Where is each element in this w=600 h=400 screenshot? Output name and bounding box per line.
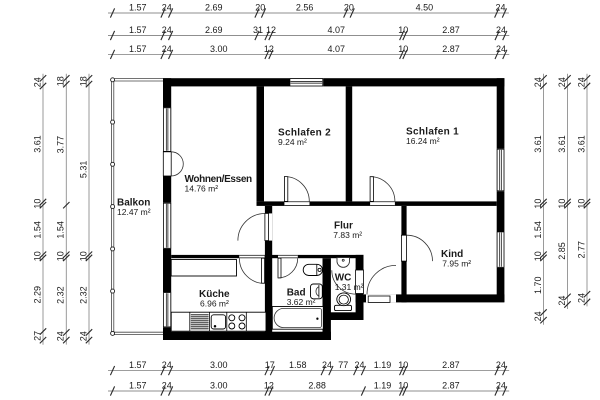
svg-text:2.69: 2.69: [205, 25, 223, 35]
svg-text:27: 27: [32, 331, 42, 341]
svg-text:10: 10: [533, 251, 543, 261]
svg-text:24: 24: [533, 77, 543, 87]
svg-text:20: 20: [255, 2, 265, 12]
svg-text:10: 10: [78, 251, 88, 261]
svg-text:24: 24: [496, 44, 506, 54]
svg-text:2.87: 2.87: [442, 44, 460, 54]
svg-text:24: 24: [162, 380, 172, 390]
svg-text:3.61: 3.61: [576, 135, 586, 153]
svg-text:2.87: 2.87: [442, 25, 460, 35]
svg-text:24: 24: [162, 360, 172, 370]
svg-text:4.07: 4.07: [328, 44, 346, 54]
svg-text:1.57: 1.57: [129, 2, 147, 12]
svg-text:2.32: 2.32: [78, 286, 88, 304]
svg-text:5.31: 5.31: [78, 161, 88, 179]
svg-text:1.31 m²: 1.31 m²: [335, 282, 364, 292]
svg-text:77: 77: [338, 360, 348, 370]
svg-text:24: 24: [56, 331, 66, 341]
svg-text:18: 18: [78, 76, 88, 86]
svg-text:10: 10: [576, 199, 586, 209]
svg-text:1.19: 1.19: [374, 360, 392, 370]
svg-text:1.70: 1.70: [533, 276, 543, 294]
svg-text:24: 24: [576, 293, 586, 303]
svg-text:2.88: 2.88: [308, 380, 326, 390]
svg-text:24: 24: [78, 331, 88, 341]
svg-text:24: 24: [322, 360, 332, 370]
svg-text:10: 10: [32, 199, 42, 209]
svg-text:10: 10: [557, 199, 567, 209]
svg-text:3.77: 3.77: [56, 136, 66, 154]
svg-text:24: 24: [557, 77, 567, 87]
svg-text:2.29: 2.29: [32, 286, 42, 304]
svg-text:1.57: 1.57: [129, 380, 147, 390]
svg-text:24: 24: [162, 44, 172, 54]
svg-text:18: 18: [56, 76, 66, 86]
svg-text:1.54: 1.54: [32, 221, 42, 239]
svg-text:1.57: 1.57: [129, 360, 147, 370]
svg-text:9.24 m²: 9.24 m²: [278, 137, 307, 147]
svg-text:2.32: 2.32: [56, 286, 66, 304]
svg-text:24: 24: [32, 77, 42, 87]
svg-text:10: 10: [398, 44, 408, 54]
svg-text:2.56: 2.56: [296, 2, 314, 12]
svg-text:24: 24: [162, 25, 172, 35]
svg-text:1.19: 1.19: [374, 380, 392, 390]
svg-text:3.61: 3.61: [32, 135, 42, 153]
svg-text:24: 24: [557, 296, 567, 306]
svg-text:10: 10: [32, 251, 42, 261]
svg-text:24: 24: [496, 25, 506, 35]
svg-text:10: 10: [398, 360, 408, 370]
svg-text:3.62 m²: 3.62 m²: [287, 297, 316, 307]
svg-text:6.96 m²: 6.96 m²: [200, 298, 229, 308]
svg-text:16.24 m²: 16.24 m²: [406, 136, 440, 146]
svg-text:3.00: 3.00: [210, 360, 228, 370]
svg-text:10: 10: [398, 25, 408, 35]
svg-text:4.50: 4.50: [416, 2, 434, 12]
svg-text:3.61: 3.61: [557, 135, 567, 153]
svg-text:12: 12: [264, 380, 274, 390]
svg-text:2.87: 2.87: [442, 380, 460, 390]
svg-text:2.69: 2.69: [205, 2, 223, 12]
svg-text:1.54: 1.54: [56, 221, 66, 239]
svg-text:7.83 m²: 7.83 m²: [333, 230, 362, 240]
svg-text:10: 10: [56, 251, 66, 261]
svg-text:3.00: 3.00: [210, 44, 228, 54]
svg-text:1.58: 1.58: [289, 360, 307, 370]
svg-text:24: 24: [533, 311, 543, 321]
svg-text:3.61: 3.61: [533, 135, 543, 153]
svg-text:10: 10: [533, 199, 543, 209]
svg-text:2.77: 2.77: [576, 241, 586, 259]
svg-text:4.07: 4.07: [328, 25, 346, 35]
svg-text:1.57: 1.57: [129, 44, 147, 54]
svg-text:24: 24: [354, 360, 364, 370]
svg-text:1.54: 1.54: [533, 221, 543, 239]
svg-text:20: 20: [344, 2, 354, 12]
svg-text:24: 24: [496, 380, 506, 390]
svg-text:24: 24: [162, 2, 172, 12]
svg-text:2.87: 2.87: [442, 360, 460, 370]
svg-text:2.85: 2.85: [557, 242, 567, 260]
svg-text:14.76 m²: 14.76 m²: [185, 184, 219, 194]
svg-text:10: 10: [398, 380, 408, 390]
svg-text:7.95 m²: 7.95 m²: [442, 259, 471, 269]
svg-text:12: 12: [264, 44, 274, 54]
svg-text:24: 24: [496, 360, 506, 370]
svg-text:12: 12: [266, 25, 276, 35]
svg-text:24: 24: [576, 77, 586, 87]
svg-text:31: 31: [253, 25, 263, 35]
svg-text:3.00: 3.00: [210, 380, 228, 390]
svg-text:17: 17: [265, 360, 275, 370]
svg-text:12.47 m²: 12.47 m²: [117, 207, 151, 217]
svg-text:24: 24: [495, 2, 505, 12]
svg-text:1.57: 1.57: [129, 25, 147, 35]
